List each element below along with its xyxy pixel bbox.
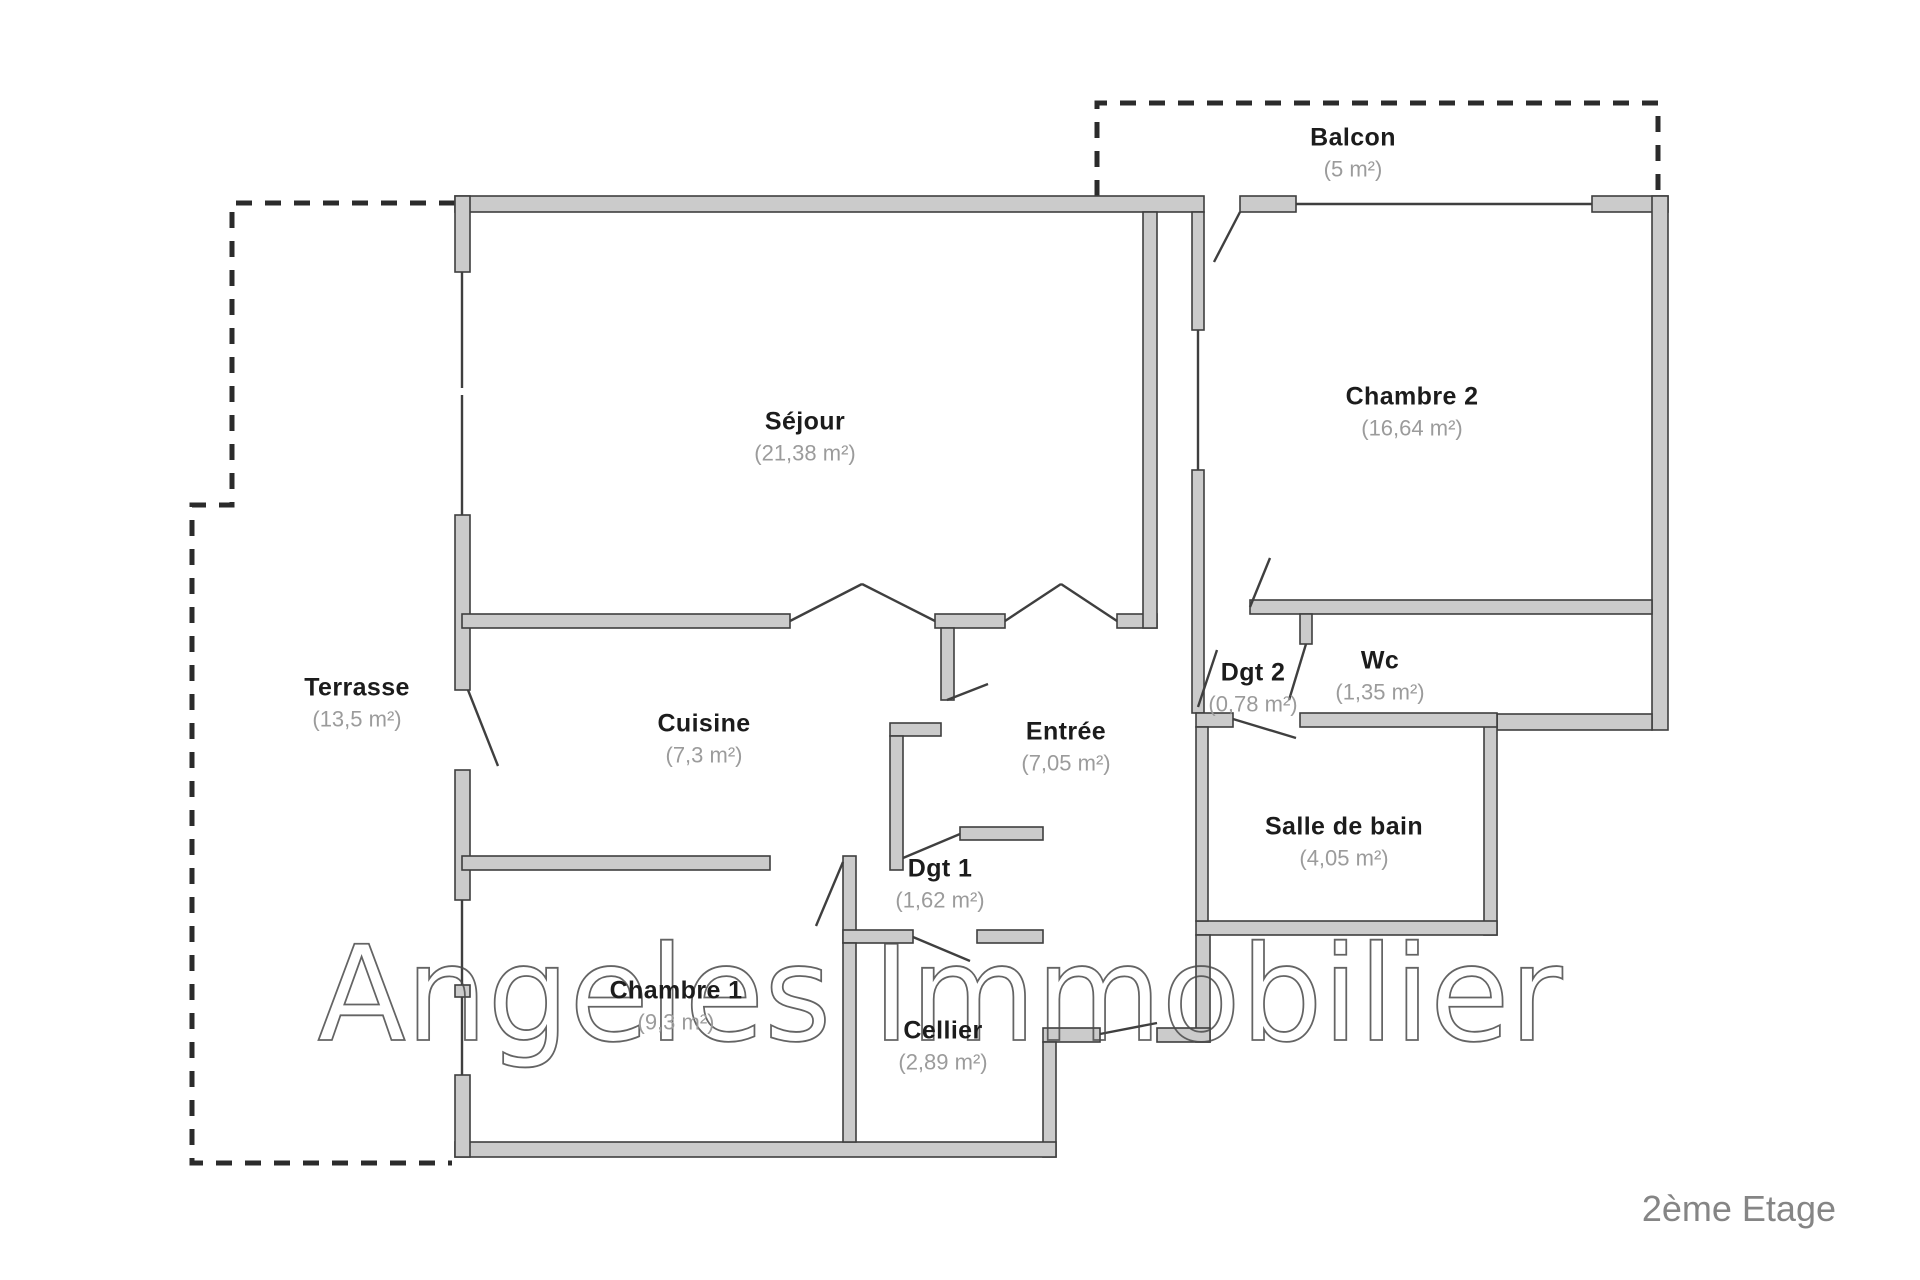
- wall-divider-sejour-ch2-b: [1192, 212, 1204, 330]
- balcony-door-leaf: [1214, 212, 1240, 262]
- wall-entree-stub: [941, 628, 954, 700]
- room-name: Dgt 1: [895, 855, 984, 884]
- room-label-salle-de-bain: Salle de bain (4,05 m²): [1265, 813, 1423, 872]
- chambre1-door-leaf: [816, 862, 843, 926]
- wall-left-3: [455, 770, 470, 900]
- room-label-cuisine: Cuisine (7,3 m²): [657, 710, 750, 769]
- room-name: Séjour: [754, 408, 855, 437]
- sdb-door-leaf: [1233, 719, 1296, 738]
- terrasse-door-leaf: [468, 690, 498, 766]
- room-area: (2,89 m²): [898, 1050, 987, 1076]
- room-label-dgt1: Dgt 1 (1,62 m²): [895, 855, 984, 914]
- wall-cuisine-top-corner: [890, 723, 941, 736]
- room-name: Chambre 1: [610, 977, 743, 1006]
- wall-sdb-right: [1484, 714, 1497, 935]
- room-area: (16,64 m²): [1346, 416, 1479, 442]
- room-area: (7,3 m²): [657, 743, 750, 769]
- room-name: Cellier: [898, 1017, 987, 1046]
- wall-bottom: [455, 1142, 1056, 1157]
- room-name: Cuisine: [657, 710, 750, 739]
- room-name: Salle de bain: [1265, 813, 1423, 842]
- room-area: (7,05 m²): [1021, 751, 1110, 777]
- floor-plan: Angeles Immobilier Séjour (21,38 m²) Cha…: [0, 0, 1920, 1280]
- wall-dgt1-top: [960, 827, 1043, 840]
- room-name: Chambre 2: [1346, 383, 1479, 412]
- wall-sejour-bottom-mid: [935, 614, 1005, 628]
- floor-label: 2ème Etage: [1642, 1188, 1836, 1230]
- room-name: Dgt 2: [1208, 659, 1297, 688]
- room-label-cellier: Cellier (2,89 m²): [898, 1017, 987, 1076]
- room-label-balcon: Balcon (5 m²): [1310, 124, 1396, 183]
- room-area: (21,38 m²): [754, 441, 855, 467]
- room-label-chambre1: Chambre 1 (9,3 m²): [610, 977, 743, 1036]
- room-label-entree: Entrée (7,05 m²): [1021, 718, 1110, 777]
- wall-left-2: [455, 515, 470, 690]
- wall-wc-bottom-right: [1300, 713, 1497, 727]
- floor-plan-drawing: Angeles Immobilier: [0, 0, 1920, 1280]
- room-name: Wc: [1335, 647, 1424, 676]
- sejour-double-door1-leaf-a: [790, 584, 862, 621]
- room-label-terrasse: Terrasse (13,5 m²): [304, 674, 410, 733]
- wall-step-right: [1497, 714, 1652, 730]
- sejour-double-door1-leaf-b: [862, 584, 935, 621]
- wall-cuisine-right: [890, 736, 903, 870]
- wall-chambre1-top: [462, 856, 770, 870]
- sejour-double-door2-leaf-a: [1005, 584, 1061, 621]
- room-name: Balcon: [1310, 124, 1396, 153]
- wall-chambre2-bottom: [1250, 600, 1652, 614]
- wall-sejour-bottom-left: [462, 614, 790, 628]
- wall-dgt2-left: [1192, 470, 1204, 713]
- wall-wc-left-stub: [1300, 614, 1312, 644]
- wall-top-left: [455, 196, 1204, 212]
- room-area: (5 m²): [1310, 157, 1396, 183]
- wall-right: [1652, 196, 1668, 730]
- wall-left-1: [455, 196, 470, 272]
- room-name: Entrée: [1021, 718, 1110, 747]
- room-label-dgt2: Dgt 2 (0,78 m²): [1208, 659, 1297, 718]
- room-label-wc: Wc (1,35 m²): [1335, 647, 1424, 706]
- wall-top-mid: [1240, 196, 1296, 212]
- room-area: (1,35 m²): [1335, 680, 1424, 706]
- room-name: Terrasse: [304, 674, 410, 703]
- room-area: (0,78 m²): [1208, 692, 1297, 718]
- room-area: (1,62 m²): [895, 888, 984, 914]
- wall-divider-sejour-ch2-a: [1143, 212, 1157, 628]
- wall-left-5: [455, 1075, 470, 1157]
- room-area: (9,3 m²): [610, 1010, 743, 1036]
- room-label-chambre2: Chambre 2 (16,64 m²): [1346, 383, 1479, 442]
- sejour-double-door2-leaf-b: [1061, 584, 1117, 621]
- wall-sdb-left: [1196, 727, 1208, 921]
- room-label-sejour: Séjour (21,38 m²): [754, 408, 855, 467]
- room-area: (13,5 m²): [304, 707, 410, 733]
- room-area: (4,05 m²): [1265, 846, 1423, 872]
